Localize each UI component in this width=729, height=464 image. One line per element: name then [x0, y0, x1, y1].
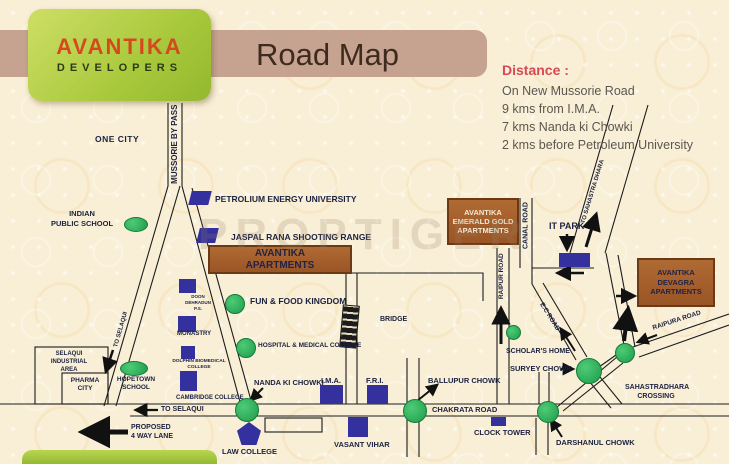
label-it-park: IT PARK — [549, 221, 584, 233]
arrow-darshanul — [551, 420, 562, 437]
brand-logo: AVANTIKA DEVELOPERS — [28, 9, 211, 101]
arrow-nanda — [251, 388, 263, 400]
label-dolphin: DOLPHIN BIOMEDICAL COLLEGE — [170, 359, 228, 371]
label-canal-road: CANAL ROAD — [521, 196, 530, 256]
label-nanda-ki-chowki: NANDA KI CHOWKI — [254, 378, 324, 388]
brand-tagline: DEVELOPERS — [57, 62, 182, 74]
vasant-vihar-building — [348, 417, 368, 437]
label-clock-tower: CLOCK TOWER — [474, 428, 531, 438]
ballupur-chowk-marker — [403, 399, 427, 423]
label-to-selaqui-main: TO SELAQUI — [161, 405, 204, 414]
label-selaqui-industrial: SELAQUI INDUSTRIAL AREA — [38, 351, 100, 374]
cambridge-building — [180, 371, 197, 391]
label-chakrata-road: CHAKRATA ROAD — [432, 405, 497, 415]
distance-heading: Distance : — [502, 62, 728, 78]
avantika-devagra-box: AVANTIKA DEVAGRA APARTMENTS — [637, 258, 715, 307]
label-darshanul-chowk: DARSHANUL CHOWK — [556, 438, 635, 448]
jaspal-rana-building — [196, 228, 219, 243]
indian-public-school-marker — [124, 217, 148, 232]
label-proposed-lane: PROPOSED 4 WAY LANE — [131, 423, 181, 441]
label-one-city: ONE CITY — [95, 134, 139, 145]
distance-panel: Distance : On New Mussorie Road 9 kms fr… — [502, 62, 728, 155]
hopetown-school-marker — [120, 361, 148, 376]
label-petrolium-energy-university: PETROLIUM ENERGY UNIVERSITY — [215, 194, 357, 205]
ima-building — [320, 385, 343, 404]
label-cambridge: CAMBRIDGE COLLEGE — [176, 395, 244, 403]
page-title: Road Map — [256, 37, 399, 73]
label-jaspal-rana: JASPAL RANA SHOOTING RANGE — [231, 232, 371, 243]
label-law-college: LAW COLLEGE — [222, 447, 277, 457]
dolphin-building — [181, 346, 195, 359]
distance-line: 7 kms Nanda ki Chowki — [502, 118, 728, 136]
sahastradhara-crossing-marker — [615, 343, 635, 363]
label-hospital: HOSPITAL & MEDICAL COLLEGE — [258, 342, 361, 350]
label-indian-public-school: INDIAN PUBLIC SCHOOL — [42, 209, 122, 229]
label-mussorie-bypass: MUSSORIE BY PASS — [170, 99, 180, 189]
label-hopetown: HOPETOWN SCHOOL — [110, 376, 162, 393]
label-fun-food: FUN & FOOD KINGDOM — [250, 296, 346, 307]
label-pharma-city: PHARMA CITY — [64, 377, 106, 394]
label-monastry: MONASTRY — [177, 331, 211, 339]
plot-outline-vasant — [265, 418, 322, 432]
label-sahastradhara-crossing: SAHASTRADHARA CROSSING — [625, 383, 687, 401]
road-devagra — [606, 253, 635, 347]
doon-ps-building — [179, 279, 196, 293]
road-main-horizontal — [0, 404, 729, 416]
label-ballupur-chowk: BALLUPUR CHOWK — [428, 376, 501, 386]
arrow-ballupur — [417, 385, 437, 401]
avantika-apartments-label: AVANTIKA APARTMENTS — [246, 248, 315, 271]
fun-food-marker — [225, 294, 245, 314]
monastry-building — [178, 316, 196, 332]
petrolium-university-building — [188, 191, 211, 205]
avantika-emerald-label: AVANTIKA EMERALD GOLD APARTMENTS — [453, 208, 514, 235]
footer-green-strip — [22, 450, 217, 464]
fri-building — [367, 385, 388, 404]
avantika-emerald-box: AVANTIKA EMERALD GOLD APARTMENTS — [447, 198, 519, 245]
label-ima: I.M.A. — [321, 376, 341, 386]
hospital-marker — [236, 338, 256, 358]
label-raipur-road: RAIPUR ROAD — [498, 244, 506, 308]
it-park-building — [559, 253, 590, 267]
label-suryey-chowk: SURYEY CHOWK — [510, 364, 572, 374]
label-scholars-home: SCHOLAR'S HOME — [506, 347, 570, 356]
distance-line: 2 kms before Petroleum University — [502, 136, 728, 154]
avantika-devagra-label: AVANTIKA DEVAGRA APARTMENTS — [650, 268, 702, 296]
label-bridge: BRIDGE — [380, 315, 407, 324]
label-vasant-vihar: VASANT VIHAR — [334, 440, 390, 450]
suryey-chowk-marker — [576, 358, 602, 384]
darshanul-chowk-marker — [537, 401, 559, 423]
clock-tower-building — [491, 417, 506, 426]
label-doon-ps: DOON DEHRADUN P.S. — [178, 294, 218, 312]
road-map-page: AVANTIKA DEVELOPERS Road Map Distance : … — [0, 0, 729, 464]
avantika-apartments-box: AVANTIKA APARTMENTS — [208, 245, 352, 274]
arrow-raipura-left — [638, 335, 657, 342]
distance-line: 9 kms from I.M.A. — [502, 100, 728, 118]
scholars-home-marker — [506, 325, 521, 340]
arrow-devagra-up — [624, 310, 628, 341]
brand-name: AVANTIKA — [56, 36, 182, 58]
label-fri: F.R.I. — [366, 376, 384, 386]
distance-line: On New Mussorie Road — [502, 82, 728, 100]
